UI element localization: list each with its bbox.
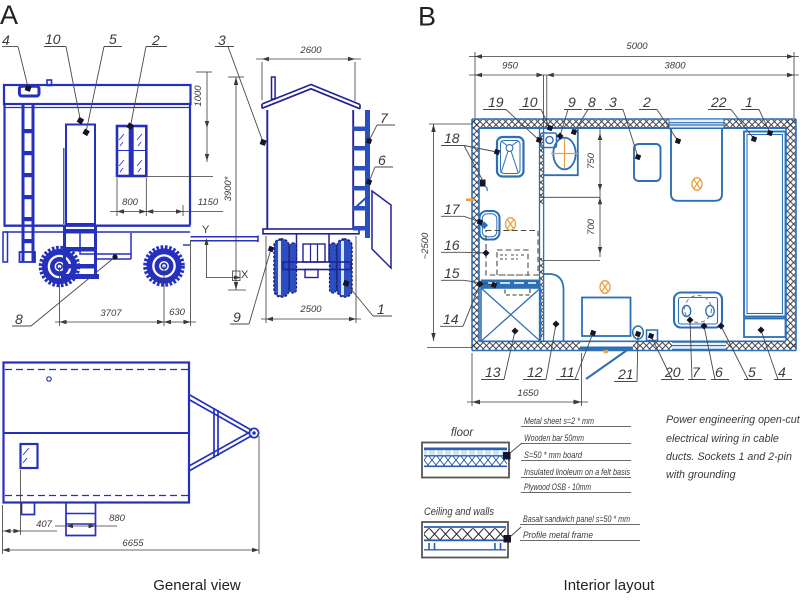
svg-text:15: 15 xyxy=(444,265,460,281)
svg-text:Insulated linoleum on a felt b: Insulated linoleum on a felt basis xyxy=(524,467,630,478)
svg-text:1650: 1650 xyxy=(517,388,539,399)
svg-text:11: 11 xyxy=(560,364,575,380)
svg-text:17: 17 xyxy=(444,201,461,217)
svg-text:20: 20 xyxy=(664,364,681,380)
svg-text:2600: 2600 xyxy=(299,45,322,56)
svg-text:Wooden bar 50mm: Wooden bar 50mm xyxy=(524,433,584,444)
svg-text:Ceiling and walls: Ceiling and walls xyxy=(424,506,494,518)
svg-text:3800: 3800 xyxy=(664,61,686,72)
svg-text:B: B xyxy=(418,2,436,32)
svg-text:407: 407 xyxy=(36,519,53,530)
svg-text:1: 1 xyxy=(745,94,753,110)
svg-text:10: 10 xyxy=(522,94,538,110)
svg-text:Metal sheet s=2 * mm: Metal sheet s=2 * mm xyxy=(524,416,594,427)
svg-text:9: 9 xyxy=(233,309,241,325)
svg-text:750: 750 xyxy=(586,152,597,169)
svg-text:18: 18 xyxy=(444,130,460,146)
svg-text:2500: 2500 xyxy=(299,304,322,315)
svg-text:Plywood OSB - 10mm: Plywood OSB - 10mm xyxy=(524,482,591,493)
svg-text:Basalt sandwich panel s=50 * m: Basalt sandwich panel s=50 * mm xyxy=(523,514,630,525)
svg-text:880: 880 xyxy=(109,513,126,524)
svg-text:13: 13 xyxy=(485,364,501,380)
svg-text:5: 5 xyxy=(748,364,756,380)
svg-text:3: 3 xyxy=(218,32,226,48)
svg-text:6655: 6655 xyxy=(122,538,144,549)
svg-text:1150: 1150 xyxy=(198,197,219,208)
svg-text:6: 6 xyxy=(715,364,723,380)
svg-text:~2500: ~2500 xyxy=(420,232,431,259)
svg-text:19: 19 xyxy=(488,94,504,110)
svg-text:7: 7 xyxy=(692,364,701,380)
svg-text:8: 8 xyxy=(588,94,596,110)
svg-text:Y: Y xyxy=(202,224,210,236)
svg-text:22: 22 xyxy=(710,94,727,110)
svg-text:floor: floor xyxy=(451,427,475,439)
svg-text:950: 950 xyxy=(502,61,519,72)
svg-text:21: 21 xyxy=(617,366,634,382)
svg-text:S=50 * mm board: S=50 * mm board xyxy=(524,450,583,461)
svg-text:General view: General view xyxy=(153,577,241,594)
svg-text:3: 3 xyxy=(609,94,617,110)
svg-text:2: 2 xyxy=(151,32,160,48)
svg-text:12: 12 xyxy=(527,364,543,380)
svg-text:2: 2 xyxy=(642,94,651,110)
svg-text:electrical wiring in cable: electrical wiring in cable xyxy=(666,433,779,445)
svg-text:with grounding: with grounding xyxy=(666,469,736,481)
svg-text:6: 6 xyxy=(378,152,386,168)
svg-text:630: 630 xyxy=(169,307,186,318)
svg-text:3900*: 3900* xyxy=(223,176,234,201)
svg-text:5000: 5000 xyxy=(626,41,648,52)
svg-text:3707: 3707 xyxy=(100,308,122,319)
svg-text:7: 7 xyxy=(380,110,389,126)
svg-text:10: 10 xyxy=(45,31,61,47)
svg-text:14: 14 xyxy=(443,311,459,327)
svg-text:Power engineering open-cut: Power engineering open-cut xyxy=(666,414,800,426)
svg-text:Profile metal frame: Profile metal frame xyxy=(523,530,593,541)
svg-text:16: 16 xyxy=(444,237,460,253)
svg-text:A: A xyxy=(0,0,18,30)
svg-text:8: 8 xyxy=(15,311,23,327)
svg-text:700: 700 xyxy=(586,218,597,235)
svg-text:4: 4 xyxy=(2,32,10,48)
svg-text:1: 1 xyxy=(377,301,385,317)
svg-text:1000: 1000 xyxy=(193,85,204,107)
svg-text:9: 9 xyxy=(568,94,576,110)
svg-text:5: 5 xyxy=(109,31,117,47)
svg-text:X: X xyxy=(241,269,249,281)
svg-text:ducts. Sockets 1 and 2-pin: ducts. Sockets 1 and 2-pin xyxy=(666,451,792,463)
svg-text:Interior layout: Interior layout xyxy=(564,577,656,594)
svg-text:4: 4 xyxy=(778,364,786,380)
svg-text:800: 800 xyxy=(122,197,139,208)
